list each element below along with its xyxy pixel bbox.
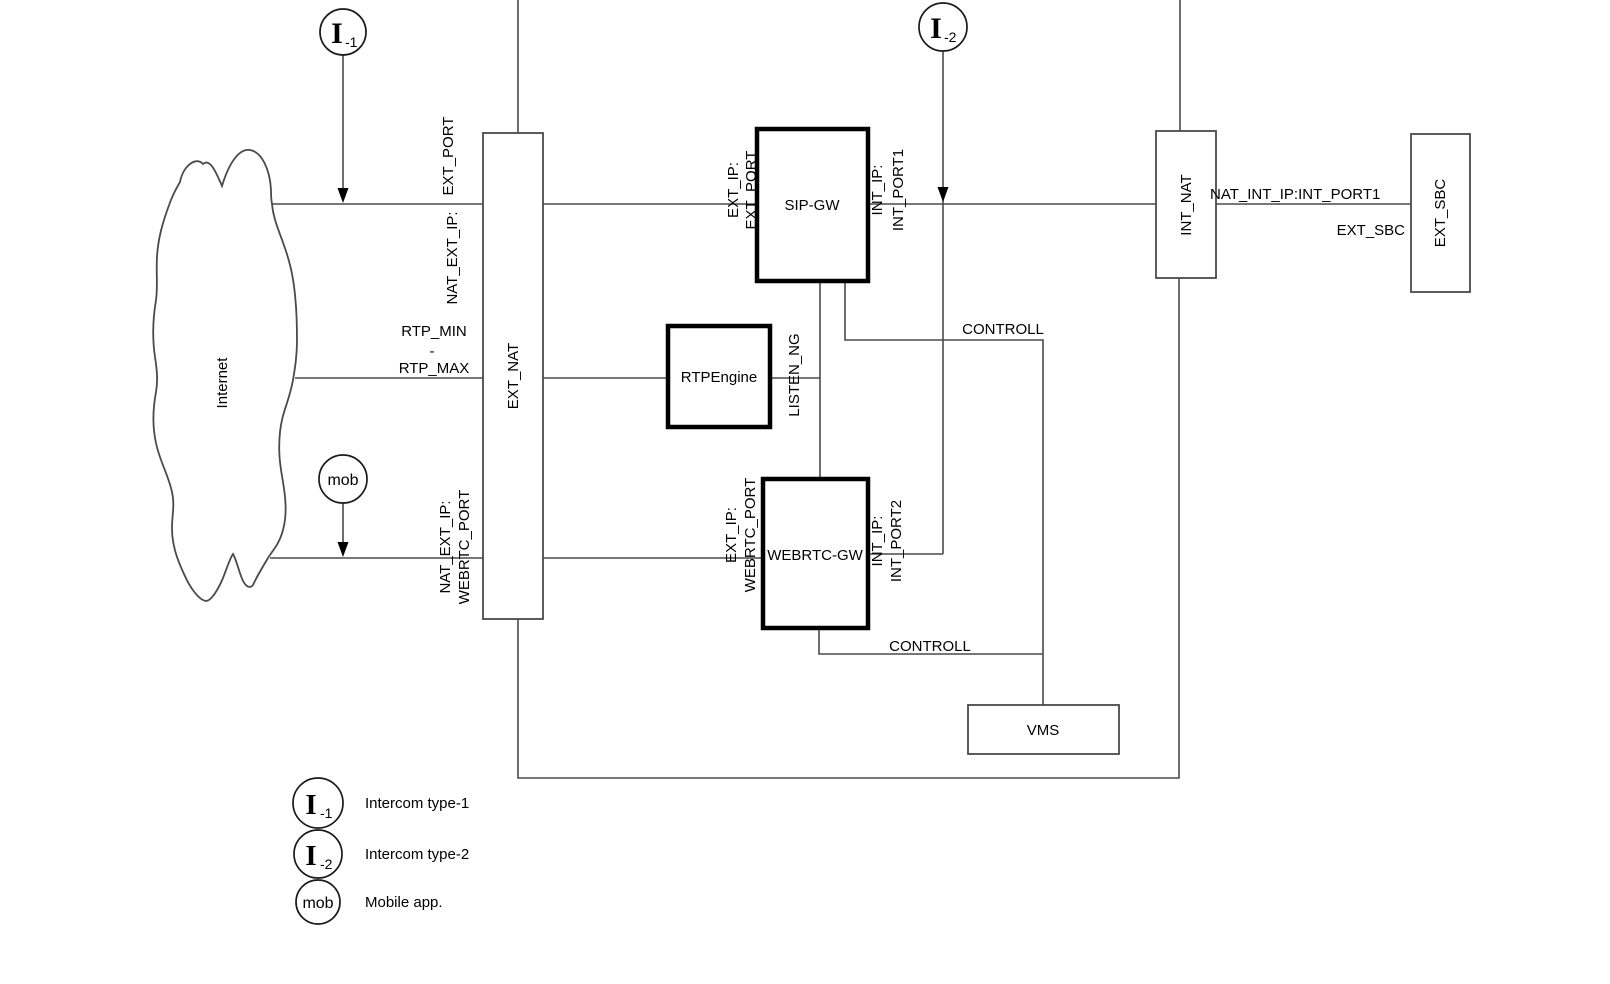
nat-ext-ip-label: NAT_EXT_IP: (444, 211, 461, 304)
ext-sbc-conn-label: EXT_SBC (1337, 222, 1406, 239)
ext-port-label: EXT_PORT (440, 117, 457, 196)
legend-intercom1-circle (293, 778, 343, 828)
rtp-max-label: RTP_MAX (399, 360, 470, 377)
controll-webrtc-label: CONTROLL (889, 638, 971, 655)
rtp-dash-label: - (430, 343, 435, 360)
legend-intercom2-subscript: -2 (320, 856, 333, 872)
legend: I -1 Intercom type-1 I -2 Intercom type-… (293, 778, 469, 924)
rtp-min-label: RTP_MIN (401, 323, 467, 340)
nat-int-ip-port1-label: NAT_INT_IP:INT_PORT1 (1210, 186, 1380, 203)
intercom2-circle (919, 3, 967, 51)
legend-intercom1-label: Intercom type-1 (365, 795, 469, 812)
rtpengine-label: RTPEngine (681, 369, 757, 386)
webrtc-ext-ip-label: EXT_IP: (723, 507, 740, 563)
arrowhead-intercom1 (338, 188, 349, 203)
arrowhead-mobile (338, 542, 349, 557)
arrowhead-intercom2 (938, 187, 949, 202)
nat-ext-ip-webrtc-label-line1: NAT_EXT_IP: (437, 500, 454, 593)
sip-int-port1-label: INT_PORT1 (890, 149, 907, 231)
sip-ext-port-label: EXT_PORT (743, 151, 760, 230)
ext-nat-label: EXT_NAT (505, 343, 522, 409)
mobile-glyph: mob (327, 472, 358, 489)
legend-intercom2-label: Intercom type-2 (365, 846, 469, 863)
sip-int-ip-label: INT_IP: (869, 165, 886, 216)
int-nat-label: INT_NAT (1178, 174, 1195, 235)
legend-intercom1-glyph: I (305, 789, 316, 821)
legend-mobile-label: Mobile app. (365, 894, 443, 911)
diagram-canvas: EXT_NAT SIP-GW RTPEngine WEBRTC-GW INT_N… (0, 0, 1610, 984)
sip-gw-label: SIP-GW (785, 197, 841, 214)
webrtc-ext-port-label: WEBRTC_PORT (742, 478, 759, 592)
vms-label: VMS (1027, 722, 1060, 739)
intercom1-glyph: I (331, 17, 343, 50)
controll-sip-label: CONTROLL (962, 321, 1044, 338)
network-diagram: EXT_NAT SIP-GW RTPEngine WEBRTC-GW INT_N… (0, 0, 1610, 984)
webrtc-int-port2-label: INT_PORT2 (888, 500, 905, 582)
legend-intercom2-glyph: I (305, 840, 316, 872)
webrtc-int-ip-label: INT_IP: (869, 516, 886, 567)
webrtc-gw-label: WEBRTC-GW (767, 547, 863, 564)
listen-ng-label: LISTEN_NG (786, 333, 803, 416)
legend-intercom2-circle (294, 830, 342, 878)
internet-label: Internet (214, 357, 231, 409)
legend-mobile-glyph: mob (302, 895, 333, 912)
intercom2-glyph: I (930, 12, 942, 45)
legend-intercom1-subscript: -1 (320, 805, 333, 821)
intercom2-subscript: -2 (944, 29, 957, 45)
ext-sbc-label: EXT_SBC (1432, 179, 1449, 248)
intercom1-circle (320, 9, 366, 55)
sip-ext-ip-label: EXT_IP: (725, 162, 742, 218)
intercom1-subscript: -1 (345, 34, 358, 50)
nat-ext-ip-webrtc-label-line2: WEBRTC_PORT (456, 490, 473, 604)
